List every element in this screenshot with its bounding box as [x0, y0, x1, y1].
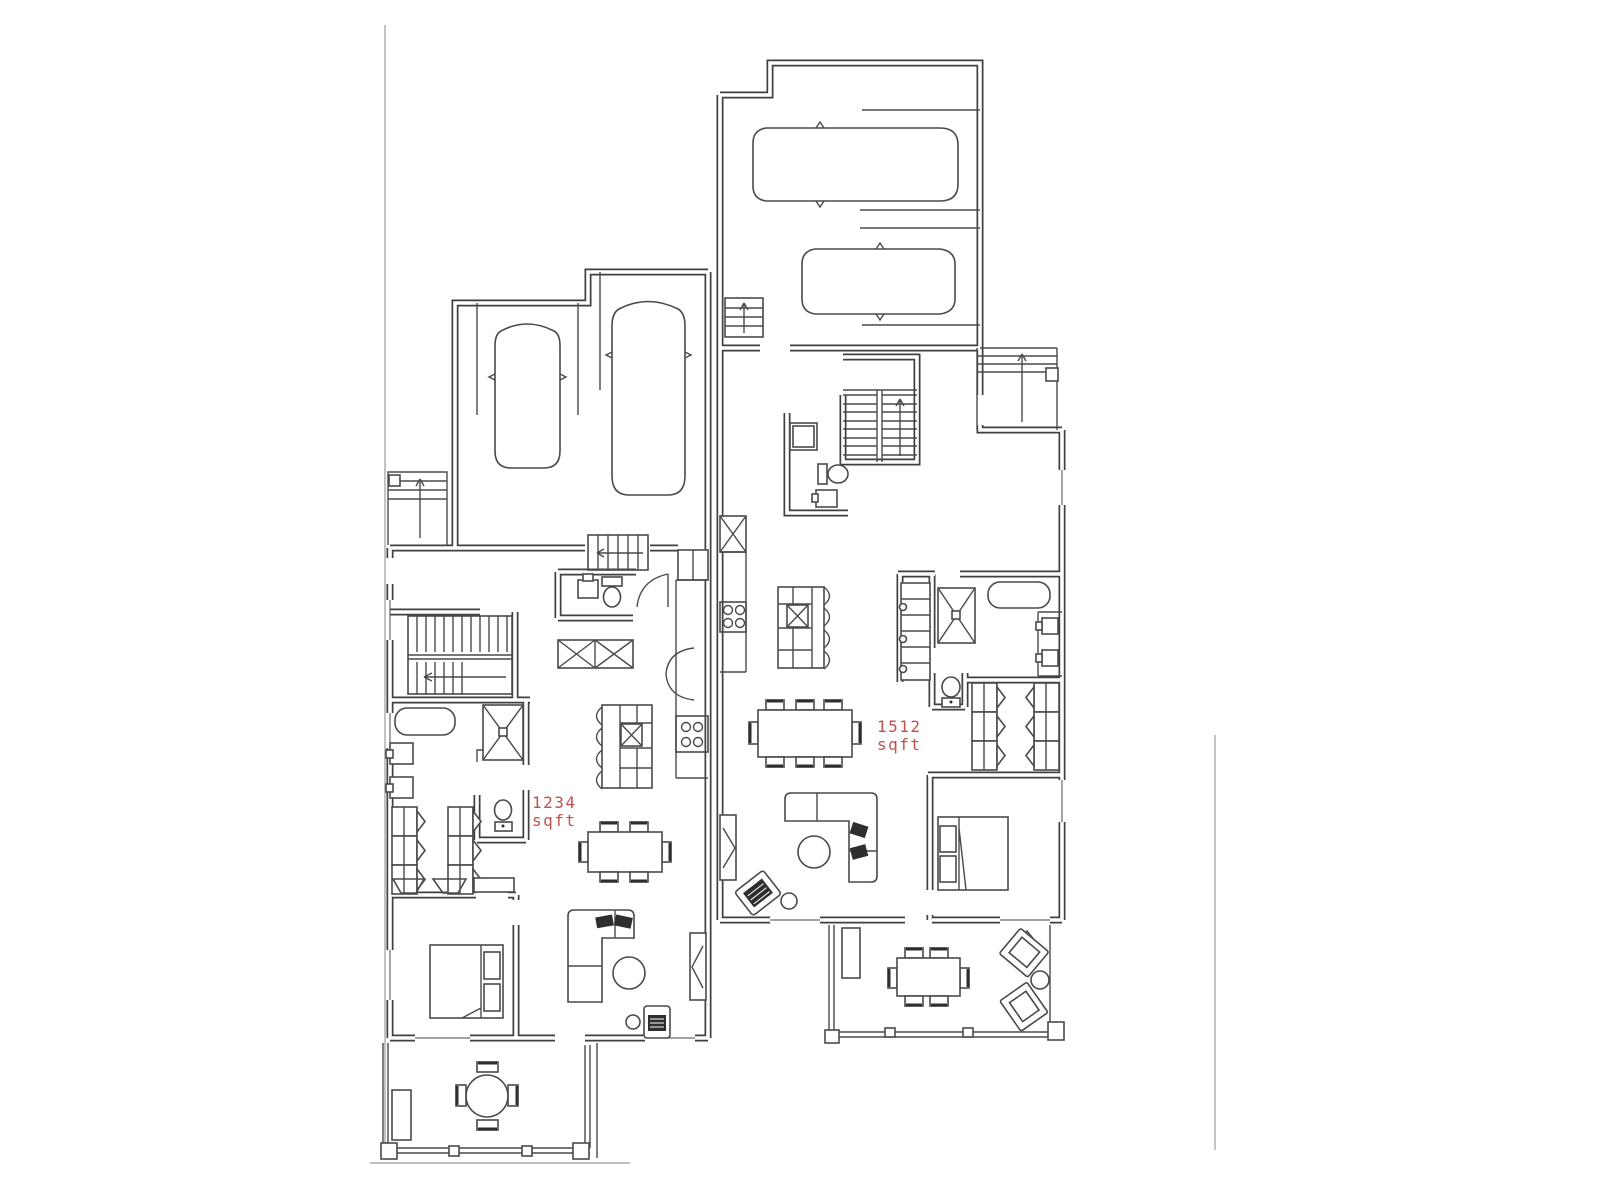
garage-bay-lines: [860, 110, 980, 325]
unit-b-dining-set: [749, 700, 861, 767]
pillow: [940, 826, 956, 852]
entry-arrow: [416, 479, 424, 538]
tv-stand: [644, 1006, 670, 1038]
dining-table: [588, 832, 662, 872]
unit-a-garage-wall: [455, 272, 708, 548]
stair-direction-arrow: [424, 673, 506, 681]
armchair: [735, 870, 782, 916]
stair-direction-arrow: [597, 549, 643, 557]
deck-post: [522, 1146, 532, 1156]
deck-post: [885, 1028, 895, 1037]
unit-a-wardrobes: [392, 807, 481, 894]
porch-steps: [977, 356, 1057, 372]
bench: [842, 928, 860, 978]
stove: [676, 716, 708, 752]
lounge-chair: [999, 928, 1049, 977]
fireplace: [690, 933, 706, 1000]
shower: [938, 588, 975, 643]
toilet: [828, 465, 848, 483]
unit-b-powder-room: [790, 423, 848, 507]
side-table: [781, 893, 797, 909]
sink: [578, 580, 598, 598]
unit-a-coat-closet: [558, 640, 633, 668]
side-table: [1031, 971, 1049, 989]
deck-post: [573, 1143, 589, 1159]
unit-b-garage: [725, 110, 980, 337]
deck-post: [1048, 1022, 1064, 1040]
patio-table-set: [888, 948, 969, 1006]
unit-b-kitchen-island: [778, 587, 830, 669]
unit-a-staircase: [408, 616, 512, 694]
deck-post: [825, 1030, 839, 1043]
unit-b-entry-porch: [977, 348, 1058, 430]
sink: [1042, 618, 1058, 634]
door-swing: [637, 574, 668, 607]
toilet: [495, 800, 512, 820]
unit-a-garage: [477, 272, 691, 570]
pillow: [484, 984, 500, 1011]
toilet-tank: [818, 464, 827, 484]
unit-a-powder-room: [578, 574, 668, 607]
double-door-swing: [666, 648, 694, 700]
garage-steps: [725, 298, 763, 337]
car: [495, 324, 560, 468]
unit-b-deck: [825, 925, 1064, 1043]
bar-stools: [597, 707, 603, 789]
deck-post: [449, 1146, 459, 1156]
unit-a-kitchen-island: [597, 705, 653, 789]
unit-b-living-room: [720, 793, 877, 916]
floor-plan-page: 1234 sqft 1512 sqft: [0, 0, 1600, 1200]
unit-a-bedroom: [393, 878, 514, 1018]
coffee-table: [798, 836, 830, 868]
dining-table: [758, 710, 852, 757]
car: [802, 249, 955, 314]
bathtub: [395, 708, 455, 735]
closet-shelf: [474, 878, 514, 892]
bench: [392, 1090, 411, 1140]
garage-steps: [588, 535, 648, 570]
round-table: [466, 1075, 508, 1117]
fireplace: [720, 815, 736, 880]
shower: [477, 705, 523, 762]
unit-a-area-value: 1234: [532, 793, 577, 812]
bed: [938, 817, 1008, 890]
unit-b-wardrobes: [972, 683, 1059, 770]
deck-post: [963, 1028, 973, 1037]
coffee-table: [613, 957, 645, 989]
pillow: [484, 952, 500, 979]
cabinet: [790, 423, 817, 450]
unit-b-garage-wall: [720, 63, 980, 348]
kitchen-counter: [676, 580, 708, 778]
unit-b-interior: [720, 390, 1062, 916]
shelf-unit: [900, 583, 931, 680]
deck-post: [381, 1143, 397, 1159]
car: [753, 128, 958, 201]
unit-b-bedroom: [938, 817, 1008, 890]
unit-a-living-room: [568, 910, 706, 1038]
car: [612, 302, 685, 496]
toilet: [604, 587, 621, 607]
stair-direction-arrow: [740, 303, 748, 333]
unit-b-staircase: [843, 390, 917, 462]
bathtub: [988, 582, 1050, 608]
unit-a-area-unit: sqft: [532, 811, 577, 830]
pillow: [940, 856, 956, 882]
bar-stools: [824, 587, 830, 669]
patio-table-set: [456, 1062, 518, 1130]
sink: [816, 490, 837, 507]
stair-direction-arrow: [896, 399, 904, 456]
floor-plan-canvas: 1234 sqft 1512 sqft: [0, 0, 1600, 1200]
unit-a-deck: [370, 1043, 630, 1163]
bed: [430, 945, 503, 1018]
outdoor-table: [897, 958, 960, 996]
toilet-tank: [602, 577, 622, 586]
unit-a-entry-porch: [388, 472, 447, 545]
sink: [1042, 650, 1058, 666]
unit-b-area-value: 1512: [877, 717, 922, 736]
unit-a-dining-set: [579, 822, 671, 882]
unit-b-area-unit: sqft: [877, 735, 922, 754]
toilet: [942, 677, 960, 697]
unit-b-entry-wall: [980, 348, 1062, 430]
stove: [720, 602, 746, 632]
side-table: [626, 1015, 640, 1029]
